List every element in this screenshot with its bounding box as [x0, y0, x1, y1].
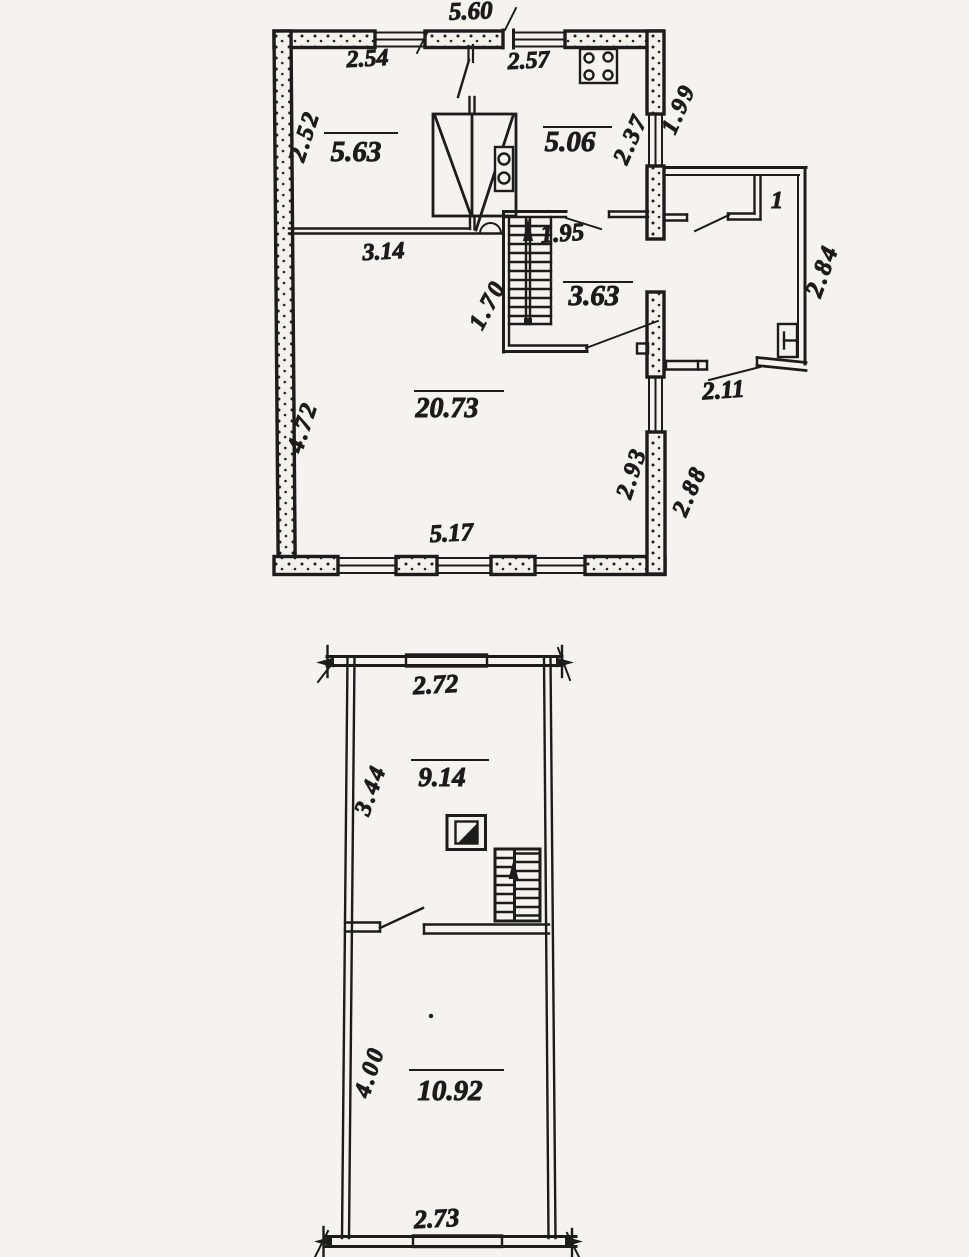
svg-text:3.14: 3.14	[361, 238, 405, 266]
svg-text:2.88: 2.88	[667, 462, 712, 521]
svg-text:5.60: 5.60	[448, 0, 493, 26]
svg-text:2.84: 2.84	[800, 241, 844, 302]
svg-text:2.37: 2.37	[608, 110, 653, 169]
svg-text:5.06: 5.06	[545, 126, 596, 158]
svg-text:1: 1	[771, 188, 783, 214]
svg-text:2.54: 2.54	[345, 45, 389, 73]
svg-text:2.11: 2.11	[700, 376, 745, 406]
svg-text:9.14: 9.14	[418, 762, 465, 792]
svg-text:3.63: 3.63	[568, 280, 620, 312]
svg-text:2.72: 2.72	[411, 669, 459, 700]
svg-text:4.00: 4.00	[349, 1043, 390, 1101]
svg-text:5.63: 5.63	[331, 136, 382, 168]
svg-text:2.73: 2.73	[412, 1203, 460, 1234]
svg-text:20.73: 20.73	[415, 393, 479, 424]
svg-text:3.44: 3.44	[350, 761, 393, 820]
svg-text:1.95: 1.95	[540, 219, 586, 249]
svg-text:2.57: 2.57	[506, 47, 551, 75]
svg-text:10.92: 10.92	[417, 1075, 482, 1107]
svg-text:5.17: 5.17	[429, 519, 476, 548]
